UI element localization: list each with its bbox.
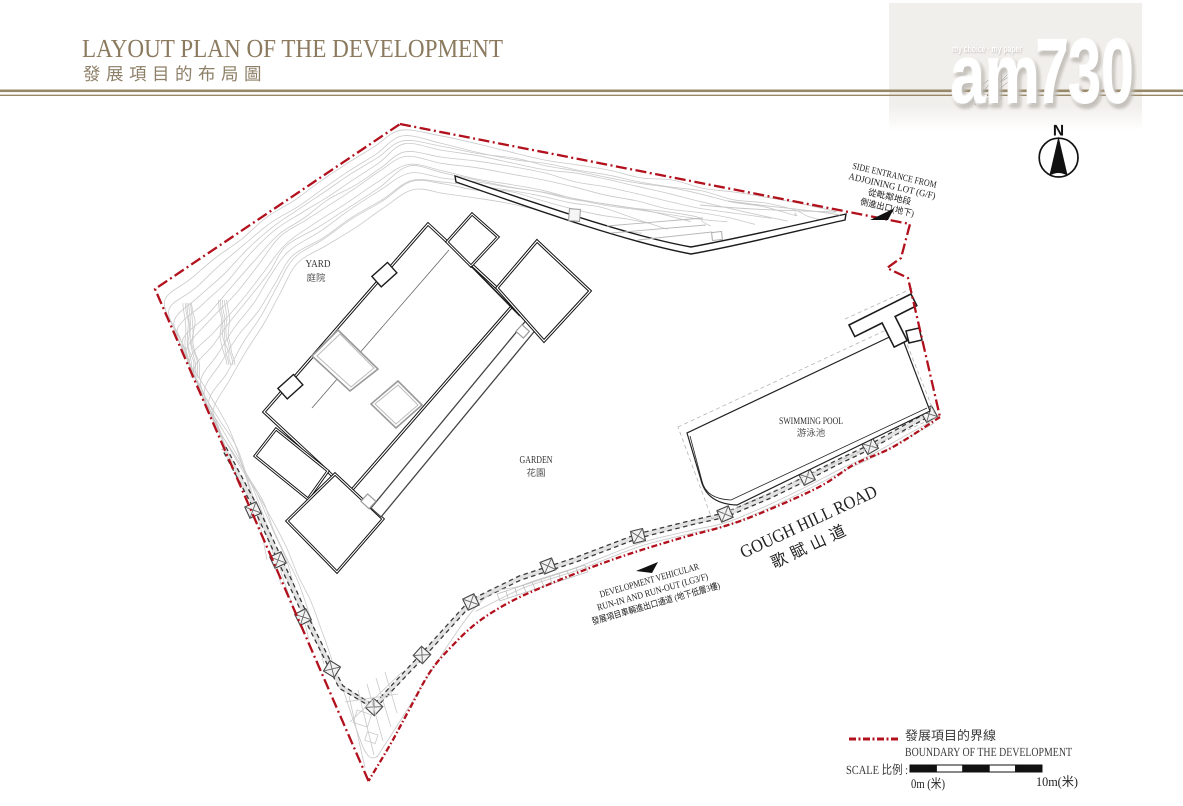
svg-text:730: 730: [1036, 22, 1134, 123]
svg-text:SCALE 比例 :: SCALE 比例 :: [846, 763, 908, 777]
svg-text:BOUNDARY OF THE DEVELOPMENT: BOUNDARY OF THE DEVELOPMENT: [905, 745, 1072, 759]
svg-text:LAYOUT PLAN OF THE DEVELOPMENT: LAYOUT PLAN OF THE DEVELOPMENT: [82, 34, 503, 63]
svg-text:10m(米): 10m(米): [1036, 774, 1078, 789]
svg-text:游泳池: 游泳池: [797, 428, 826, 439]
svg-text:發展項目的布局圖: 發展項目的布局圖: [83, 64, 267, 84]
svg-text:發展項目的界線: 發展項目的界線: [905, 728, 996, 743]
svg-text:庭院: 庭院: [306, 272, 326, 284]
svg-text:YARD: YARD: [306, 259, 331, 270]
svg-text:GARDEN: GARDEN: [520, 455, 553, 466]
svg-text:花園: 花園: [526, 468, 545, 479]
svg-text:SWIMMING POOL: SWIMMING POOL: [779, 416, 843, 427]
svg-text:my choice · my paper: my choice · my paper: [952, 44, 1022, 55]
svg-text:0m (米): 0m (米): [911, 776, 945, 791]
